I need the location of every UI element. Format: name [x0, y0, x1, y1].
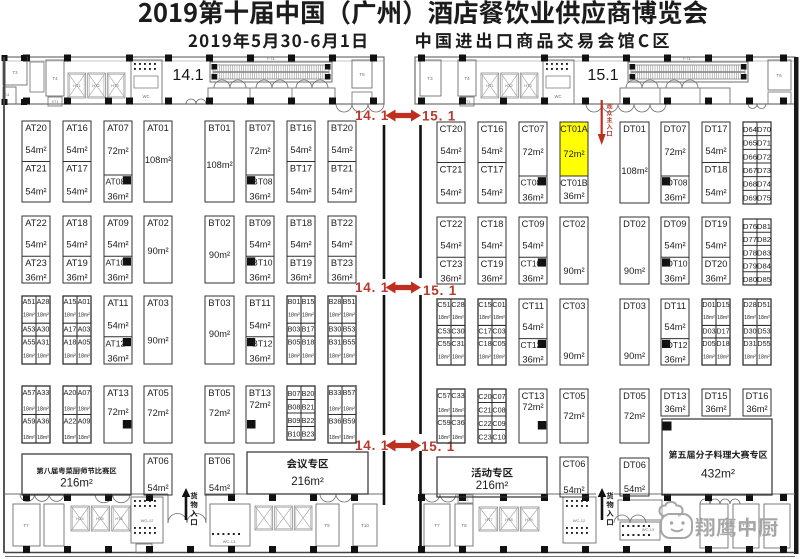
- svg-text:18m²: 18m²: [438, 315, 450, 321]
- svg-text:18m²: 18m²: [744, 355, 756, 361]
- svg-text:HT5: HT5: [96, 516, 104, 521]
- svg-text:C33: C33: [451, 391, 464, 400]
- svg-text:T10: T10: [361, 523, 369, 528]
- svg-text:18m²: 18m²: [37, 354, 49, 360]
- svg-text:B07: B07: [288, 389, 301, 398]
- svg-text:BT05: BT05: [208, 388, 230, 398]
- svg-text:D31: D31: [743, 339, 756, 348]
- svg-text:18m²: 18m²: [37, 313, 49, 319]
- svg-text:T8: T8: [461, 523, 467, 528]
- svg-text:CT11: CT11: [522, 301, 544, 311]
- svg-text:D28: D28: [743, 300, 756, 309]
- svg-text:DT15: DT15: [705, 391, 728, 401]
- svg-text:72m²: 72m²: [249, 400, 270, 410]
- svg-text:54m²: 54m²: [25, 187, 46, 197]
- svg-text:18m²: 18m²: [302, 354, 314, 360]
- svg-text:C08: C08: [492, 406, 505, 415]
- svg-text:72m²: 72m²: [107, 146, 128, 156]
- svg-text:36m²: 36m²: [107, 192, 128, 202]
- svg-text:AT10: AT10: [106, 258, 126, 268]
- svg-text:A59: A59: [23, 417, 36, 426]
- svg-text:216m²: 216m²: [476, 480, 509, 492]
- svg-text:C57: C57: [437, 391, 450, 400]
- svg-text:18m²: 18m²: [64, 313, 76, 319]
- svg-text:36m²: 36m²: [440, 274, 461, 284]
- svg-text:A33: A33: [37, 388, 50, 397]
- svg-text:B31: B31: [329, 337, 342, 346]
- svg-text:54m²: 54m²: [290, 240, 311, 250]
- svg-text:AT17: AT17: [66, 164, 88, 174]
- svg-text:T7: T7: [434, 523, 440, 528]
- svg-text:BT03: BT03: [208, 298, 230, 308]
- svg-text:108m²: 108m²: [206, 160, 232, 170]
- svg-text:T9: T9: [324, 523, 330, 528]
- svg-text:A36: A36: [37, 417, 50, 426]
- svg-text:CT13: CT13: [522, 391, 545, 401]
- svg-text:A07: A07: [78, 388, 91, 397]
- svg-text:BT20: BT20: [331, 123, 353, 133]
- svg-text:D80: D80: [743, 275, 757, 284]
- svg-text:D82: D82: [757, 235, 771, 244]
- svg-text:B21: B21: [302, 403, 315, 412]
- svg-text:54m²: 54m²: [705, 241, 726, 251]
- svg-text:B18: B18: [302, 337, 315, 346]
- svg-text:B03: B03: [288, 324, 301, 333]
- svg-text:54m²: 54m²: [705, 188, 726, 198]
- svg-text:18m²: 18m²: [703, 315, 715, 321]
- svg-text:36m²: 36m²: [331, 273, 352, 283]
- svg-text:36m²: 36m²: [522, 274, 543, 284]
- svg-text:54m²: 54m²: [481, 241, 502, 251]
- svg-text:36m²: 36m²: [664, 274, 685, 284]
- svg-text:C31: C31: [451, 339, 464, 348]
- svg-text:D71: D71: [757, 139, 771, 148]
- svg-text:BT22: BT22: [331, 218, 353, 228]
- svg-text:DT19: DT19: [705, 219, 728, 229]
- svg-text:A20: A20: [64, 388, 77, 397]
- svg-text:54m²: 54m²: [522, 322, 543, 332]
- svg-text:AT11: AT11: [108, 298, 129, 308]
- svg-text:A05: A05: [78, 337, 91, 346]
- svg-text:18m²: 18m²: [452, 435, 464, 441]
- svg-text:18m²: 18m²: [479, 315, 491, 321]
- svg-text:CT10: CT10: [521, 259, 542, 269]
- svg-text:36m²: 36m²: [664, 193, 685, 203]
- svg-text:DT07: DT07: [664, 124, 687, 134]
- svg-text:54m²: 54m²: [624, 484, 645, 494]
- svg-text:15.1: 15.1: [587, 67, 618, 84]
- svg-text:C28: C28: [451, 300, 464, 309]
- svg-text:A09: A09: [78, 417, 91, 426]
- svg-text:18m²: 18m²: [758, 355, 770, 361]
- svg-text:DT05: DT05: [623, 391, 646, 401]
- svg-text:WC: WC: [555, 94, 562, 99]
- svg-text:54m²: 54m²: [481, 188, 502, 198]
- svg-text:C51: C51: [437, 300, 450, 309]
- svg-text:18m²: 18m²: [479, 355, 491, 361]
- svg-text:18m²: 18m²: [78, 435, 90, 441]
- svg-text:CT19: CT19: [481, 259, 504, 269]
- svg-text:36m²: 36m²: [66, 273, 87, 283]
- svg-text:54m²: 54m²: [331, 187, 352, 197]
- svg-text:B59: B59: [343, 417, 356, 426]
- svg-text:108m²: 108m²: [145, 155, 171, 165]
- svg-text:C55: C55: [437, 339, 450, 348]
- svg-text:BT01: BT01: [208, 123, 230, 133]
- svg-text:18m²: 18m²: [343, 313, 355, 319]
- svg-text:36m²: 36m²: [746, 404, 767, 414]
- svg-text:15. 1: 15. 1: [421, 439, 455, 454]
- svg-text:216m²: 216m²: [60, 478, 93, 490]
- svg-text:36m²: 36m²: [705, 274, 726, 284]
- svg-text:18m²: 18m²: [493, 355, 505, 361]
- svg-text:AT12: AT12: [106, 338, 126, 348]
- svg-text:18m²: 18m²: [78, 313, 90, 319]
- svg-text:AT21: AT21: [25, 164, 47, 174]
- svg-text:18m²: 18m²: [23, 313, 35, 319]
- svg-text:CT09: CT09: [522, 219, 545, 229]
- svg-text:36m²: 36m²: [481, 274, 502, 284]
- svg-text:B09: B09: [288, 416, 301, 425]
- svg-text:CT05: CT05: [563, 391, 586, 401]
- svg-text:D67: D67: [743, 166, 757, 175]
- svg-text:A03: A03: [78, 324, 91, 333]
- svg-text:36m²: 36m²: [249, 273, 270, 283]
- svg-text:54m²: 54m²: [290, 145, 311, 155]
- svg-text:36m²: 36m²: [522, 193, 543, 203]
- svg-text:HT3: HT3: [111, 83, 119, 88]
- svg-text:C10: C10: [492, 433, 505, 442]
- svg-text:18m²: 18m²: [452, 408, 464, 414]
- svg-text:54m²: 54m²: [249, 320, 270, 330]
- svg-text:18m²: 18m²: [343, 435, 355, 441]
- svg-text:36m²: 36m²: [522, 355, 543, 365]
- svg-text:B28: B28: [329, 297, 342, 306]
- svg-text:18m²: 18m²: [343, 354, 355, 360]
- svg-text:36m²: 36m²: [664, 355, 685, 365]
- svg-text:DT06: DT06: [623, 460, 646, 470]
- svg-text:AT06: AT06: [147, 456, 169, 466]
- svg-text:D15: D15: [716, 300, 729, 309]
- svg-text:18m²: 18m²: [438, 355, 450, 361]
- svg-text:A55: A55: [23, 337, 36, 346]
- svg-text:DT01: DT01: [623, 124, 646, 134]
- svg-text:72m²: 72m²: [563, 149, 584, 159]
- svg-text:72m²: 72m²: [664, 147, 685, 157]
- svg-text:18m²: 18m²: [64, 435, 76, 441]
- svg-text:AT02: AT02: [147, 218, 169, 228]
- svg-text:HT8: HT8: [505, 517, 513, 522]
- svg-text:18m²: 18m²: [288, 354, 300, 360]
- svg-text:54m²: 54m²: [209, 483, 230, 493]
- svg-text:C22: C22: [478, 419, 491, 428]
- svg-text:CT17: CT17: [481, 165, 504, 175]
- svg-text:BT08: BT08: [252, 177, 273, 187]
- svg-text:A28: A28: [37, 297, 50, 306]
- svg-text:C36: C36: [451, 418, 464, 427]
- svg-text:C23: C23: [478, 433, 491, 442]
- svg-text:B17: B17: [302, 324, 315, 333]
- svg-text:18m²: 18m²: [343, 407, 355, 413]
- svg-text:B23: B23: [302, 430, 315, 439]
- svg-text:D55: D55: [757, 339, 770, 348]
- svg-text:AT08: AT08: [106, 177, 126, 187]
- svg-text:C21: C21: [478, 406, 491, 415]
- svg-text:B30: B30: [329, 324, 342, 333]
- svg-text:36m²: 36m²: [25, 273, 46, 283]
- svg-text:CT20: CT20: [440, 124, 463, 134]
- svg-text:AT09: AT09: [107, 218, 129, 228]
- svg-text:54m²: 54m²: [66, 145, 87, 155]
- svg-text:18m²: 18m²: [302, 313, 314, 319]
- svg-text:DT16: DT16: [746, 391, 769, 401]
- svg-text:D51: D51: [757, 300, 770, 309]
- svg-text:90m²: 90m²: [209, 250, 230, 260]
- svg-text:72m²: 72m²: [522, 402, 543, 412]
- svg-text:BT23: BT23: [331, 258, 353, 268]
- svg-text:54m²: 54m²: [66, 240, 87, 250]
- svg-text:HT9: HT9: [525, 517, 533, 522]
- svg-text:54m²: 54m²: [563, 485, 584, 495]
- svg-text:18m²: 18m²: [78, 354, 90, 360]
- svg-text:D75: D75: [757, 193, 771, 202]
- svg-text:A18: A18: [64, 337, 77, 346]
- svg-text:A30: A30: [37, 324, 50, 333]
- svg-text:D68: D68: [743, 180, 757, 189]
- svg-text:36m²: 36m²: [107, 354, 128, 364]
- svg-text:36m²: 36m²: [249, 192, 270, 202]
- svg-text:C17: C17: [478, 327, 491, 336]
- svg-text:D79: D79: [743, 262, 757, 271]
- svg-text:AT19: AT19: [66, 258, 88, 268]
- svg-text:CT06: CT06: [563, 459, 586, 469]
- svg-text:DT12: DT12: [667, 340, 688, 350]
- svg-text:B22: B22: [302, 416, 315, 425]
- svg-text:90m²: 90m²: [147, 336, 168, 346]
- svg-text:216m²: 216m²: [291, 476, 324, 488]
- svg-text:D72: D72: [757, 152, 771, 161]
- svg-text:CT23: CT23: [440, 259, 463, 269]
- svg-text:A15: A15: [64, 297, 77, 306]
- svg-text:D85: D85: [757, 275, 771, 284]
- svg-text:CT07: CT07: [522, 124, 545, 134]
- svg-text:18m²: 18m²: [23, 435, 35, 441]
- svg-text:DT18: DT18: [705, 165, 728, 175]
- svg-text:CT03: CT03: [563, 301, 586, 311]
- svg-text:CT01B: CT01B: [560, 178, 588, 188]
- svg-text:AT07: AT07: [107, 123, 129, 133]
- svg-text:B01: B01: [288, 297, 301, 306]
- svg-text:A17: A17: [64, 324, 77, 333]
- svg-text:18m²: 18m²: [78, 407, 90, 413]
- svg-text:36m²: 36m²: [705, 404, 726, 414]
- svg-text:BT12: BT12: [252, 338, 273, 348]
- svg-text:BT02: BT02: [208, 218, 230, 228]
- svg-text:C4: C4: [5, 93, 10, 97]
- svg-text:18m²: 18m²: [758, 315, 770, 321]
- svg-text:A57: A57: [23, 388, 36, 397]
- svg-text:18m²: 18m²: [744, 315, 756, 321]
- svg-text:T4: T4: [52, 76, 58, 81]
- svg-text:AT20: AT20: [25, 123, 47, 133]
- svg-text:HT2: HT2: [505, 83, 513, 88]
- svg-text:18m²: 18m²: [288, 313, 300, 319]
- svg-text:BT07: BT07: [249, 123, 271, 133]
- svg-text:BT10: BT10: [252, 258, 273, 268]
- svg-text:D76: D76: [743, 222, 757, 231]
- svg-text:C53: C53: [437, 327, 450, 336]
- svg-text:54m²: 54m²: [147, 483, 168, 493]
- svg-text:14. 1: 14. 1: [355, 438, 389, 453]
- svg-text:72m²: 72m²: [563, 411, 584, 421]
- svg-text:B15: B15: [302, 297, 315, 306]
- svg-text:D84: D84: [757, 262, 771, 271]
- svg-text:CT02: CT02: [563, 219, 586, 229]
- svg-text:CT08: CT08: [521, 178, 542, 188]
- svg-text:HT2: HT2: [92, 83, 100, 88]
- svg-text:WC-13: WC-13: [223, 539, 236, 544]
- svg-text:D64: D64: [743, 125, 757, 134]
- svg-text:C01: C01: [492, 300, 505, 309]
- svg-text:54m²: 54m²: [66, 187, 87, 197]
- svg-text:D83: D83: [757, 248, 771, 257]
- svg-text:WC: WC: [143, 94, 150, 99]
- svg-text:T5: T5: [359, 72, 365, 77]
- svg-text:BT13: BT13: [249, 388, 271, 398]
- svg-text:54m²: 54m²: [440, 188, 461, 198]
- svg-text:AT18: AT18: [66, 218, 88, 228]
- svg-text:18m²: 18m²: [37, 435, 49, 441]
- svg-text:18m²: 18m²: [329, 435, 341, 441]
- svg-text:36m²: 36m²: [664, 404, 685, 414]
- svg-text:90m²: 90m²: [563, 266, 584, 276]
- svg-text:HT3: HT3: [524, 83, 532, 88]
- svg-text:A51: A51: [23, 297, 36, 306]
- svg-text:HT6: HT6: [115, 516, 123, 521]
- svg-text:T7: T7: [23, 523, 29, 528]
- svg-text:AT23: AT23: [25, 258, 47, 268]
- svg-text:D65: D65: [743, 139, 757, 148]
- svg-text:BT16: BT16: [290, 123, 312, 133]
- svg-text:D78: D78: [743, 248, 757, 257]
- svg-text:WC-13: WC-13: [642, 527, 655, 532]
- svg-text:D53: D53: [757, 327, 770, 336]
- svg-text:18m²: 18m²: [64, 407, 76, 413]
- svg-text:18m²: 18m²: [329, 313, 341, 319]
- svg-text:18m²: 18m²: [493, 315, 505, 321]
- svg-text:DT17: DT17: [705, 124, 728, 134]
- svg-text:18m²: 18m²: [438, 435, 450, 441]
- svg-text:D17: D17: [716, 327, 729, 336]
- svg-text:72m²: 72m²: [522, 147, 543, 157]
- svg-text:54m²: 54m²: [440, 146, 461, 156]
- svg-text:B53: B53: [343, 324, 356, 333]
- svg-text:36m²: 36m²: [249, 354, 270, 364]
- svg-text:B55: B55: [343, 337, 356, 346]
- svg-text:A22: A22: [64, 417, 77, 426]
- svg-text:AT05: AT05: [147, 388, 169, 398]
- svg-text:54m²: 54m²: [290, 187, 311, 197]
- svg-text:WC-12: WC-12: [573, 518, 586, 523]
- svg-text:18m²: 18m²: [64, 354, 76, 360]
- svg-text:54m²: 54m²: [331, 145, 352, 155]
- svg-text:B51: B51: [343, 297, 356, 306]
- svg-text:18m²: 18m²: [329, 354, 341, 360]
- svg-text:AT16: AT16: [66, 123, 88, 133]
- svg-text:AT03: AT03: [147, 298, 169, 308]
- svg-text:CT01A: CT01A: [560, 124, 588, 134]
- svg-text:BT17: BT17: [290, 164, 312, 174]
- svg-text:54m²: 54m²: [664, 322, 685, 332]
- svg-text:C07: C07: [492, 392, 505, 401]
- svg-text:B20: B20: [302, 389, 315, 398]
- svg-text:BT06: BT06: [208, 456, 230, 466]
- svg-text:CT12: CT12: [521, 340, 542, 350]
- svg-text:AT13: AT13: [107, 388, 129, 398]
- svg-text:72m²: 72m²: [107, 407, 128, 417]
- svg-text:54m²: 54m²: [664, 241, 685, 251]
- svg-text:18m²: 18m²: [452, 315, 464, 321]
- svg-text:B10: B10: [288, 430, 301, 439]
- svg-text:72m²: 72m²: [147, 408, 168, 418]
- svg-text:T6: T6: [776, 73, 782, 78]
- svg-text:D03: D03: [702, 327, 715, 336]
- svg-text:D18: D18: [716, 339, 729, 348]
- svg-text:FT1: FT1: [683, 56, 691, 61]
- svg-text:HT7: HT7: [485, 517, 493, 522]
- svg-text:D81: D81: [757, 222, 771, 231]
- svg-text:B08: B08: [288, 403, 301, 412]
- svg-text:36m²: 36m²: [107, 273, 128, 283]
- svg-text:A31: A31: [37, 337, 50, 346]
- svg-text:18m²: 18m²: [438, 408, 450, 414]
- svg-text:90m²: 90m²: [209, 329, 230, 339]
- svg-text:BT11: BT11: [249, 298, 271, 308]
- svg-text:HT1: HT1: [486, 83, 494, 88]
- svg-text:90m²: 90m²: [624, 351, 645, 361]
- svg-text:14. 1: 14. 1: [355, 108, 389, 123]
- svg-text:D30: D30: [743, 327, 756, 336]
- svg-text:18m²: 18m²: [703, 355, 715, 361]
- svg-text:72m²: 72m²: [249, 146, 270, 156]
- svg-text:108m²: 108m²: [621, 166, 647, 176]
- svg-text:DT11: DT11: [664, 301, 686, 311]
- svg-text:D66: D66: [743, 152, 757, 161]
- svg-text:18m²: 18m²: [23, 354, 35, 360]
- svg-text:C18: C18: [478, 339, 491, 348]
- svg-text:90m²: 90m²: [624, 266, 645, 276]
- svg-text:DT09: DT09: [664, 219, 687, 229]
- svg-text:C59: C59: [437, 418, 450, 427]
- svg-text:AT01: AT01: [147, 123, 169, 133]
- svg-text:54m²: 54m²: [331, 240, 352, 250]
- svg-text:DT02: DT02: [623, 219, 646, 229]
- svg-text:B33: B33: [329, 388, 342, 397]
- svg-text:CT18: CT18: [481, 219, 504, 229]
- svg-text:15. 1: 15. 1: [423, 283, 457, 298]
- svg-text:WG-12: WG-12: [141, 518, 154, 523]
- svg-text:B57: B57: [343, 388, 356, 397]
- svg-text:36m²: 36m²: [290, 273, 311, 283]
- svg-text:D70: D70: [757, 125, 771, 134]
- svg-text:54m²: 54m²: [481, 146, 502, 156]
- svg-text:18m²: 18m²: [23, 407, 35, 413]
- svg-text:18m²: 18m²: [717, 315, 729, 321]
- svg-text:54m²: 54m²: [25, 240, 46, 250]
- svg-text:DT03: DT03: [623, 301, 646, 311]
- svg-text:D73: D73: [757, 166, 771, 175]
- svg-text:54m²: 54m²: [107, 240, 128, 250]
